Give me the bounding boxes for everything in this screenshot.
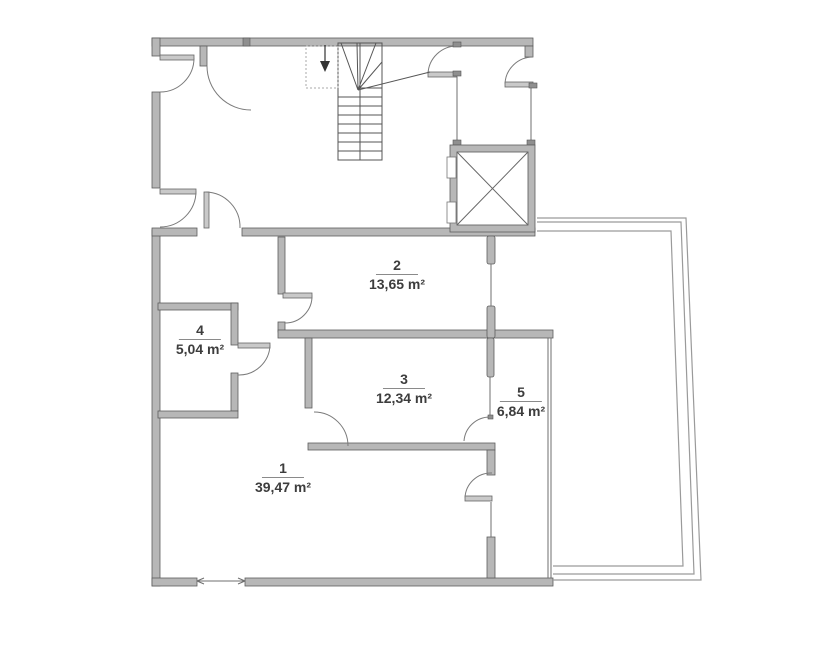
room-label-3: 3 12,34 m² xyxy=(376,371,432,406)
floor-plan-drawing xyxy=(0,0,820,648)
room-label-2: 2 13,65 m² xyxy=(369,257,425,292)
floor-plan: 1 39,47 m² 2 13,65 m² 3 12,34 m² 4 5,04 … xyxy=(0,0,820,648)
room-area: 5,04 m² xyxy=(176,341,224,357)
terrace-outline xyxy=(537,218,701,580)
room-number: 2 xyxy=(376,257,418,275)
staircase xyxy=(306,43,430,160)
room-area: 13,65 m² xyxy=(369,276,425,292)
stair-direction-arrow-icon xyxy=(320,45,330,72)
room-label-1: 1 39,47 m² xyxy=(255,460,311,495)
elevator-door-jamb xyxy=(447,202,456,223)
stair-dashed-landing xyxy=(306,46,338,88)
door-arcs xyxy=(160,46,533,498)
room-label-4: 4 5,04 m² xyxy=(176,322,224,357)
room-number: 3 xyxy=(383,371,425,389)
room-number: 1 xyxy=(262,460,304,478)
window-marker xyxy=(197,578,245,584)
elevator-shaft xyxy=(447,145,535,232)
room-label-5: 5 6,84 m² xyxy=(497,384,545,419)
room-area: 12,34 m² xyxy=(376,390,432,406)
room-area: 39,47 m² xyxy=(255,479,311,495)
room-area: 6,84 m² xyxy=(497,403,545,419)
room-number: 4 xyxy=(179,322,221,340)
door-leaves xyxy=(160,55,533,501)
elevator-door-jamb xyxy=(447,157,456,178)
room-number: 5 xyxy=(500,384,542,402)
interior-walls xyxy=(152,46,553,578)
